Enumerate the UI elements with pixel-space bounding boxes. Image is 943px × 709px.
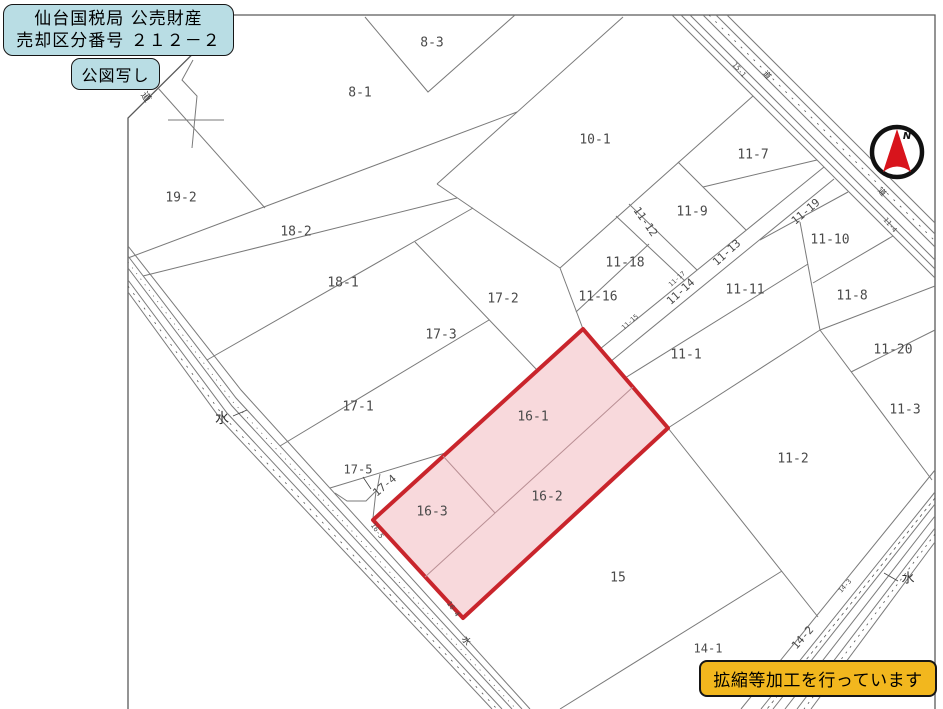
road-label: 道: [138, 89, 154, 105]
parcel-label: 18-2: [280, 225, 311, 240]
note-text: 拡縮等加工を行っています: [713, 671, 922, 691]
parcel-label: 16-2: [531, 490, 562, 505]
parcel-label: 10-1: [579, 133, 610, 148]
compass-rose: [872, 127, 922, 177]
parcel-label: 11-13: [710, 237, 743, 269]
subtitle-text: 公図写し: [81, 66, 149, 85]
compass-label: N: [903, 131, 912, 142]
parcel-label: 11-18: [605, 256, 644, 271]
parcel-label: 11-16: [578, 290, 617, 305]
parcel-label: 17-1: [342, 400, 373, 415]
parcel-label: 16-1: [517, 410, 548, 425]
parcel-label: 11-2: [777, 452, 808, 467]
parcel-label: 11-4: [882, 216, 899, 234]
parcel-label: 11-1: [670, 348, 701, 363]
parcel-label: 14-2: [789, 623, 816, 651]
water-label: 水: [901, 572, 914, 587]
cadastral-map: 8-38-110-111-719-211-918-211-1011-1818-1…: [0, 0, 943, 709]
parcel-label: 8-3: [420, 36, 443, 51]
parcel-label: 17-3: [425, 328, 456, 343]
water-label: 水: [215, 411, 229, 427]
note-box: 拡縮等加工を行っています: [699, 660, 937, 697]
parcel-label: 11-10: [810, 233, 849, 248]
parcel-label: 19-2: [165, 191, 196, 206]
map-frame: [128, 15, 935, 709]
parcel-label: 14-1: [694, 642, 723, 656]
road-label: 道: [876, 185, 889, 198]
title-line1: 仙台国税局 公売財産: [6, 8, 231, 30]
parcel-label: 11-7: [737, 148, 768, 163]
subtitle-box: 公図写し: [71, 58, 160, 90]
water-label: 水: [459, 634, 474, 648]
parcel-label: 14-3: [837, 577, 853, 594]
title-line2: 売却区分番号 ２１２－２: [6, 30, 231, 52]
parcel-label: 16-3: [416, 505, 447, 520]
parcel-label: 17-5: [344, 463, 373, 477]
parcel-label: 11-9: [676, 205, 707, 220]
parcel-label: 8-1: [348, 86, 371, 101]
parcel-label: 11-20: [873, 343, 912, 358]
parcel-label: 18-1: [327, 276, 358, 291]
survey-marks: [158, 60, 265, 208]
parcel-boundary-lines: [128, 15, 935, 709]
parcel-label: 15: [610, 571, 626, 586]
cadastral-map-page: 8-38-110-111-719-211-918-211-1011-1818-1…: [0, 0, 943, 709]
parcel-label: 11-8: [836, 289, 867, 304]
parcel-label: 11-15: [620, 312, 640, 331]
title-box: 仙台国税局 公売財産 売却区分番号 ２１２－２: [3, 4, 234, 56]
parcel-label: 17-4: [370, 472, 399, 499]
parcel-label: 11-3: [889, 403, 920, 418]
parcel-label: 11-11: [725, 283, 764, 298]
parcel-label: 17-2: [487, 292, 518, 307]
